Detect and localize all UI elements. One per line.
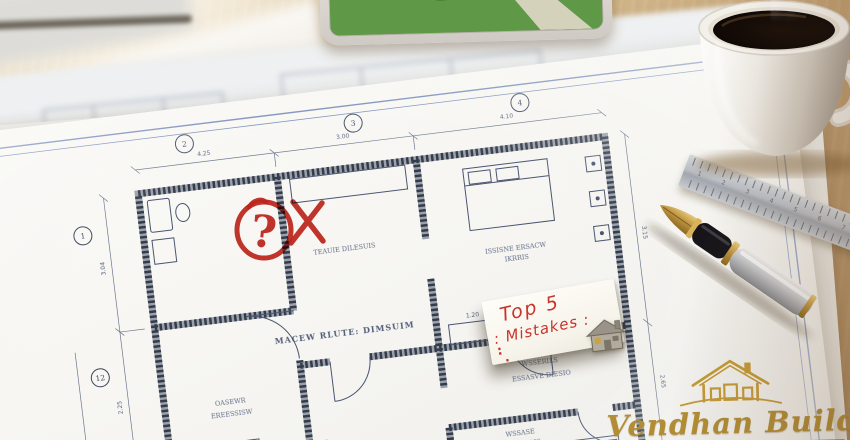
coffee-cup (688, 0, 850, 184)
ruler-number: 4 (768, 197, 774, 205)
plan-text: TEAUIE DILESUIS (313, 241, 376, 257)
plan-text: 3.15 (640, 225, 649, 239)
gold-house-icon (670, 352, 791, 407)
plan-text: 1.20 (465, 311, 479, 320)
plan-text: 3.04 (99, 261, 108, 275)
plan-text: 2 (182, 139, 188, 149)
plan-text: 1 (80, 231, 86, 241)
house-sketch-icon (581, 315, 631, 356)
vendhan-builders-logo: Vendhan Builders (605, 351, 850, 440)
plan-text: 3 (350, 119, 356, 129)
plan-text: 4.25 (197, 150, 211, 159)
tablet-screen-family-photo (328, 0, 603, 37)
plan-text: WSSASE (505, 427, 535, 439)
desk-scene-photo: 2341125 4.253.004.103.042.252.083.152.65… (0, 0, 850, 440)
plan-text: EREESSISW (211, 408, 254, 421)
dimension-labels: 4.253.004.103.042.252.083.152.652.252.40… (87, 98, 681, 440)
grid-bubbles: 2341125 (63, 93, 573, 440)
plan-text: IKRRIS (504, 253, 529, 264)
tablet-device (319, 0, 613, 46)
ruler-number: 3 (744, 188, 750, 196)
plan-text: 12 (95, 373, 106, 383)
ruler-number: 6 (816, 215, 822, 223)
logo-text: Vendhan Builders (606, 403, 850, 440)
ruler-number: 7 (840, 224, 846, 232)
plan-text: 3.00 (336, 133, 350, 142)
plan-text: ESSASVE DIESIO (512, 368, 572, 383)
coffee-surface (713, 11, 835, 50)
plan-text: 2.25 (116, 400, 125, 414)
plan-text: 4.10 (499, 113, 513, 122)
plan-text: MACEW RLUTE: DIMSUIM (274, 319, 415, 346)
plan-text: 4 (517, 98, 523, 108)
ruler-number: 5 (792, 206, 798, 214)
plan-text: OASEWR (214, 396, 247, 408)
